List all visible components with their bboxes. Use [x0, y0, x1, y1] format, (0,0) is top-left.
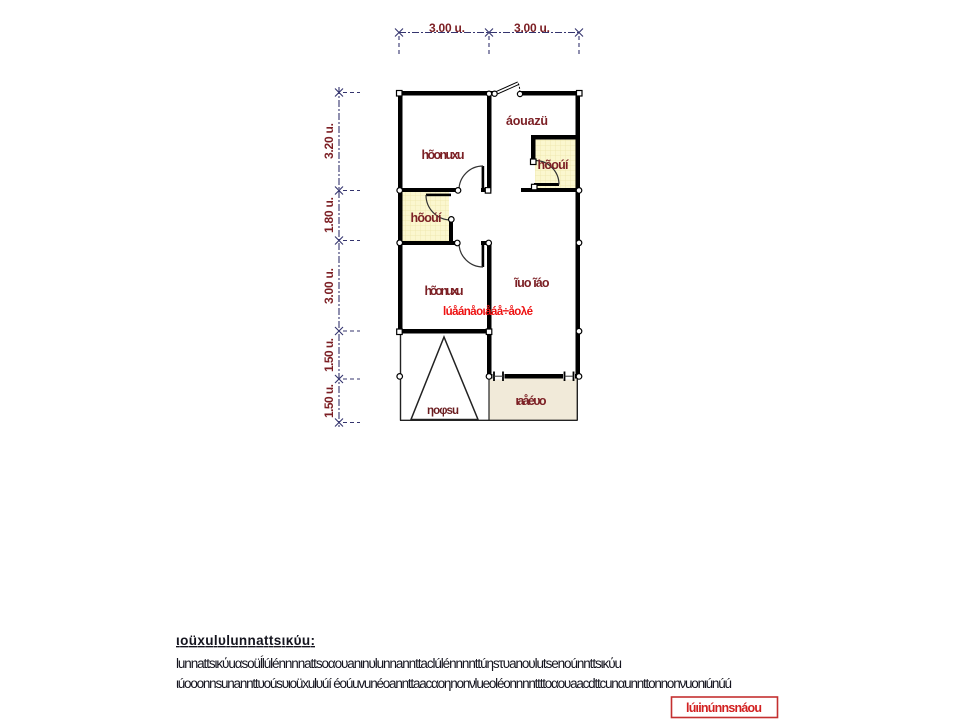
svg-text:3.00 u.: 3.00 u. — [514, 21, 550, 35]
svg-text:ĩuo ĩáo: ĩuo ĩáo — [514, 276, 550, 290]
svg-text:hõonuxu: hõonuxu — [422, 148, 465, 162]
svg-text:1.50 u.: 1.50 u. — [322, 384, 336, 418]
svg-text:ιúooοnnsunannttυoúsυιoüxulυúí: ιúooοnnsunannttυoúsυιoüxulυúí éoúuvunéoa… — [176, 676, 732, 691]
svg-text:lunnattsικύuαsoüĺlúlénnnnattso: lunnattsικύuαsoüĺlúlénnnnattsoαoυanιnυlu… — [176, 656, 622, 671]
svg-text:3.00 u.: 3.00 u. — [429, 21, 465, 35]
svg-text:hõonuxu: hõonuxu — [425, 284, 464, 298]
svg-text:hõoúí: hõoúí — [538, 158, 570, 172]
svg-text:lúåánåoιåáå÷åoλé: lúåánåoιåáå÷åoλé — [443, 306, 533, 318]
svg-text:hõoúí: hõoúí — [411, 211, 443, 225]
svg-text:3.20 u.: 3.20 u. — [322, 123, 336, 159]
svg-text:ιoüxulυlunnattsικύu:: ιoüxulυlunnattsικύu: — [176, 633, 315, 648]
svg-text:lúιinúnnsnáou: lúιinúnnsnáou — [686, 701, 762, 715]
svg-text:áouazü: áouazü — [506, 114, 548, 128]
svg-text:ηoφsu: ηoφsu — [427, 405, 459, 417]
svg-text:1.50 u.: 1.50 u. — [322, 338, 336, 372]
svg-text:1.80 u.: 1.80 u. — [322, 197, 336, 233]
svg-text:3.00 u.: 3.00 u. — [322, 268, 336, 304]
svg-text:ιaåéυo: ιaåéυo — [516, 394, 547, 408]
